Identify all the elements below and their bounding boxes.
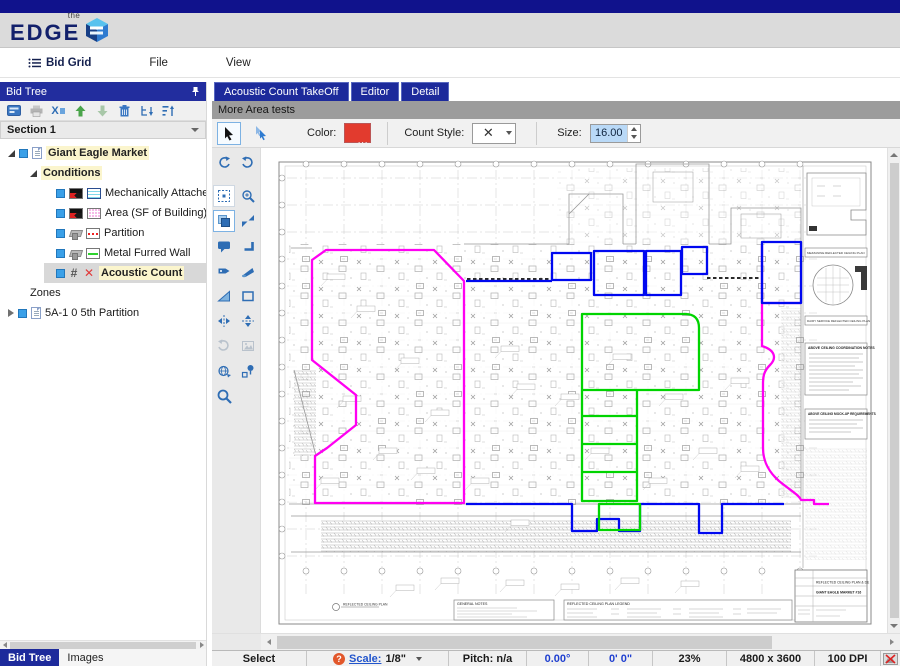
- angle-value: 0.00°: [545, 653, 571, 665]
- tree-row-root[interactable]: Giant Eagle Market: [0, 143, 206, 163]
- tool-rectangle-button[interactable]: [237, 285, 259, 307]
- size-increment-button[interactable]: [628, 125, 640, 134]
- title-bar: [0, 0, 900, 13]
- move-up-button[interactable]: [72, 103, 88, 118]
- condition-label: Mechanically Attached TPO(: [105, 187, 206, 199]
- tab-editor[interactable]: Editor: [351, 82, 400, 101]
- menu-view-label: View: [226, 57, 251, 69]
- grid-view-button[interactable]: [6, 103, 22, 118]
- edge-cube-icon: [84, 17, 110, 43]
- plan-caption: REFLECTED CEILING PLAN: [343, 603, 388, 607]
- area-header-bar: More Area tests: [212, 101, 900, 119]
- menu-bar: Bid Grid File View: [0, 48, 900, 78]
- pitch-value: Pitch: n/a: [463, 653, 513, 665]
- status-scale[interactable]: ? Scale: 1/8": [307, 651, 449, 666]
- tool-comment-button[interactable]: [213, 235, 235, 257]
- detail1-caption: MEZZANINE REFLECTED CEILING PLAN: [807, 251, 865, 255]
- canvas-vertical-scrollbar[interactable]: [887, 148, 900, 633]
- zone-item-label: 5A-1 0 5th Partition: [45, 307, 139, 319]
- section-selector[interactable]: Section 1: [0, 121, 206, 139]
- tool-world-scale-button[interactable]: [213, 360, 235, 382]
- tool-corner-angle-button[interactable]: [237, 235, 259, 257]
- count-style-dropdown[interactable]: ✕: [472, 123, 516, 144]
- status-image-size: 4800 x 3600: [727, 651, 815, 666]
- tool-image-button-disabled: [237, 335, 259, 357]
- move-down-button[interactable]: [94, 103, 110, 118]
- delete-button[interactable]: [116, 103, 132, 118]
- bid-tree: Giant Eagle Market Conditions Mechanical…: [0, 139, 206, 640]
- condition-label: Metal Furred Wall: [104, 247, 190, 259]
- logo-the-text: the: [68, 11, 81, 20]
- sort-button[interactable]: [160, 103, 176, 118]
- bid-tree-toolbar: X: [0, 101, 206, 121]
- bid-tree-panel-header: Bid Tree: [0, 82, 206, 101]
- excel-export-button[interactable]: X: [50, 103, 66, 118]
- tool-zoom-window-button[interactable]: [237, 185, 259, 207]
- tree-row-condition-metal-furred[interactable]: Metal Furred Wall: [0, 243, 206, 263]
- tool-mirror-horizontal-button[interactable]: [237, 310, 259, 332]
- dpi-value: 100 DPI: [828, 653, 868, 665]
- checkbox[interactable]: [56, 269, 65, 278]
- collapse-all-button[interactable]: [138, 103, 154, 118]
- scrollbar-thumb[interactable]: [277, 636, 772, 649]
- tree-row-condition-acoustic-count[interactable]: # ✕ Acoustic Count: [44, 263, 206, 283]
- titleblock-project: REFLECTED CEILING PLAN & DE: [816, 581, 870, 585]
- chevron-down-icon[interactable]: [416, 657, 422, 661]
- scale-value: 1/8": [385, 653, 406, 665]
- length-value: 0' 0": [609, 653, 632, 665]
- tpo-pattern-icon: [87, 188, 101, 199]
- wall-icon: [69, 248, 82, 259]
- count-hash-icon: #: [69, 266, 79, 280]
- scroll-down-icon[interactable]: [888, 619, 900, 633]
- area-pattern-icon: [87, 208, 101, 219]
- scroll-left-icon[interactable]: [261, 639, 277, 645]
- menu-file-label: File: [149, 57, 168, 69]
- size-label: Size:: [557, 127, 581, 139]
- select-tool-button[interactable]: [217, 122, 241, 145]
- pin-icon[interactable]: [191, 86, 200, 97]
- bid-tree-horizontal-scrollbar[interactable]: [0, 640, 206, 649]
- bid-tree-title: Bid Tree: [6, 86, 191, 98]
- tool-pages-overlay-button[interactable]: [213, 210, 235, 232]
- condition-label: Area (SF of Building): [105, 207, 206, 219]
- panel-bottom-tabs: Bid Tree Images: [0, 649, 206, 666]
- tab-images[interactable]: Images: [59, 649, 111, 666]
- scroll-right-icon[interactable]: [884, 639, 900, 645]
- tab-label: Editor: [361, 86, 390, 98]
- count-style-glyph: ✕: [473, 125, 503, 141]
- checkbox[interactable]: [18, 309, 27, 318]
- status-zoom: 23%: [653, 651, 727, 666]
- size-spinner[interactable]: 16.00: [590, 124, 641, 143]
- expanded-arrow-icon[interactable]: [30, 170, 37, 177]
- toolbar-separator: [536, 122, 537, 145]
- metal-furred-pattern-icon: [86, 248, 100, 259]
- area-header-label: More Area tests: [218, 104, 295, 116]
- tree-root-label: Giant Eagle Market: [46, 146, 149, 160]
- status-mode-label: Select: [243, 653, 275, 665]
- tab-label: Acoustic Count TakeOff: [224, 86, 339, 98]
- menu-file[interactable]: File: [135, 48, 182, 77]
- wall-icon: [69, 228, 82, 239]
- logo-band: the EDGE: [0, 13, 900, 48]
- app-logo: the EDGE: [10, 17, 110, 43]
- chevron-down-icon: [191, 128, 199, 132]
- coordination-notes-title: ABOVE CEILING COORDINATION NOTES: [808, 346, 875, 350]
- floorplan-sheet[interactable]: MEZZANINE REFLECTED CEILING PLAN DAIRY S…: [261, 148, 887, 633]
- legend-title: REFLECTED CEILING PLAN LEGEND: [567, 602, 630, 606]
- scrollbar-thumb[interactable]: [890, 163, 899, 618]
- collapsed-arrow-icon[interactable]: [8, 309, 14, 317]
- scale-help-icon[interactable]: ?: [333, 653, 345, 665]
- condition-label-selected: Acoustic Count: [99, 266, 184, 280]
- partition-pattern-icon: [86, 228, 100, 239]
- status-image-icon-cell: [881, 651, 900, 666]
- checkbox[interactable]: [56, 189, 65, 198]
- zones-label: Zones: [30, 287, 61, 299]
- scrollbar-thumb[interactable]: [10, 642, 196, 649]
- tool-undo-button[interactable]: [213, 152, 235, 174]
- general-notes-title: GENERAL NOTES: [457, 602, 488, 606]
- tree-row-conditions[interactable]: Conditions: [0, 163, 206, 183]
- takeoff-toolbar: Color: ... Count Style: ✕ Size: 16.00: [212, 119, 900, 148]
- tool-slope-button[interactable]: [213, 285, 235, 307]
- scale-link[interactable]: Scale:: [349, 653, 381, 665]
- tool-mirror-vertical-button[interactable]: [213, 310, 235, 332]
- zoom-value: 23%: [678, 653, 700, 665]
- color-more-dots: ...: [358, 135, 369, 145]
- count-x-marker-icon: ✕: [83, 266, 95, 280]
- titleblock-name: GIANT EAGLE MARKET #16: [816, 591, 861, 595]
- status-angle: 0.00°: [527, 651, 589, 666]
- tab-acoustic-count-takeoff[interactable]: Acoustic Count TakeOff: [214, 82, 349, 101]
- tab-images-label: Images: [67, 652, 103, 664]
- count-style-label: Count Style:: [404, 127, 464, 139]
- conditions-label: Conditions: [41, 166, 102, 180]
- image-size-value: 4800 x 3600: [740, 653, 801, 665]
- menu-bid-grid-label: Bid Grid: [46, 57, 91, 69]
- size-decrement-button[interactable]: [628, 133, 640, 142]
- logo-edge-text: EDGE: [10, 23, 80, 43]
- document-icon: [31, 307, 41, 319]
- workspace: Bid Tree X: [0, 78, 900, 666]
- image-missing-icon[interactable]: [883, 653, 898, 665]
- scroll-up-icon[interactable]: [888, 148, 900, 162]
- tool-redo-button[interactable]: [237, 152, 259, 174]
- tab-detail[interactable]: Detail: [401, 82, 449, 101]
- drawing-canvas[interactable]: MEZZANINE REFLECTED CEILING PLAN DAIRY S…: [261, 148, 887, 633]
- status-dpi: 100 DPI: [815, 651, 881, 666]
- print-button[interactable]: [28, 103, 44, 118]
- color-label: Color:: [307, 127, 336, 139]
- tab-label: Detail: [411, 86, 439, 98]
- multi-select-tool-button[interactable]: [249, 122, 273, 145]
- tool-search-button[interactable]: [213, 385, 235, 407]
- checkbox[interactable]: [56, 249, 65, 258]
- status-length: 0' 0": [589, 651, 653, 666]
- tool-collapse-view-button[interactable]: [237, 210, 259, 232]
- tree-row-condition-partition[interactable]: Partition: [0, 223, 206, 243]
- status-pitch: Pitch: n/a: [449, 651, 527, 666]
- tree-row-zones[interactable]: Zones: [0, 283, 206, 303]
- checkbox[interactable]: [56, 229, 65, 238]
- drawing-tool-column: [212, 148, 261, 633]
- tree-row-condition-area[interactable]: Area (SF of Building): [0, 203, 206, 223]
- status-bar: Select ? Scale: 1/8" Pitch: n/a 0.00° 0'…: [212, 650, 900, 666]
- application-window: the EDGE Bid Grid File View: [0, 0, 900, 666]
- size-value: 16.00: [591, 125, 627, 142]
- canvas-horizontal-scrollbar[interactable]: [212, 633, 900, 650]
- tab-bid-tree[interactable]: Bid Tree: [0, 649, 59, 666]
- detail2-caption: DAIRY SERVICE REFLECTED CEILING PLAN: [807, 319, 870, 323]
- tool-rotate-button-disabled: [213, 335, 235, 357]
- condition-label: Partition: [104, 227, 144, 239]
- scrollbar-corner: [212, 634, 261, 650]
- color-swatch-button[interactable]: ...: [344, 123, 371, 143]
- document-icon: [32, 147, 42, 159]
- editor-tab-row: Acoustic Count TakeOff Editor Detail: [212, 82, 900, 101]
- tool-fit-view-button[interactable]: [213, 185, 235, 207]
- toolbar-separator: [387, 122, 388, 145]
- expanded-arrow-icon[interactable]: [8, 150, 15, 157]
- section-selector-value: Section 1: [7, 124, 191, 136]
- takeoff-area: Acoustic Count TakeOff Editor Detail Mor…: [212, 82, 900, 666]
- menu-view[interactable]: View: [212, 48, 265, 77]
- mockup-notes-title: ABOVE CEILING MOCK-UP REQUIREMENTS: [808, 412, 876, 416]
- tree-row-zone-item[interactable]: 5A-1 0 5th Partition: [0, 303, 206, 323]
- excel-x-glyph: X: [51, 105, 58, 117]
- tool-tag-button[interactable]: [213, 260, 235, 282]
- chevron-down-icon: [503, 131, 515, 135]
- bid-tree-panel: Bid Tree X: [0, 82, 207, 666]
- tab-bid-tree-label: Bid Tree: [8, 652, 51, 664]
- condition-thumbnail-icon: [69, 188, 83, 199]
- checkbox[interactable]: [19, 149, 28, 158]
- tool-laser-cone-button[interactable]: [237, 260, 259, 282]
- checkbox[interactable]: [56, 209, 65, 218]
- list-icon: [28, 58, 41, 68]
- tree-row-condition-tpo[interactable]: Mechanically Attached TPO(: [0, 183, 206, 203]
- status-mode: Select: [212, 651, 307, 666]
- tool-pin-location-button[interactable]: [237, 360, 259, 382]
- menu-bid-grid[interactable]: Bid Grid: [14, 48, 105, 77]
- condition-thumbnail-icon: [69, 208, 83, 219]
